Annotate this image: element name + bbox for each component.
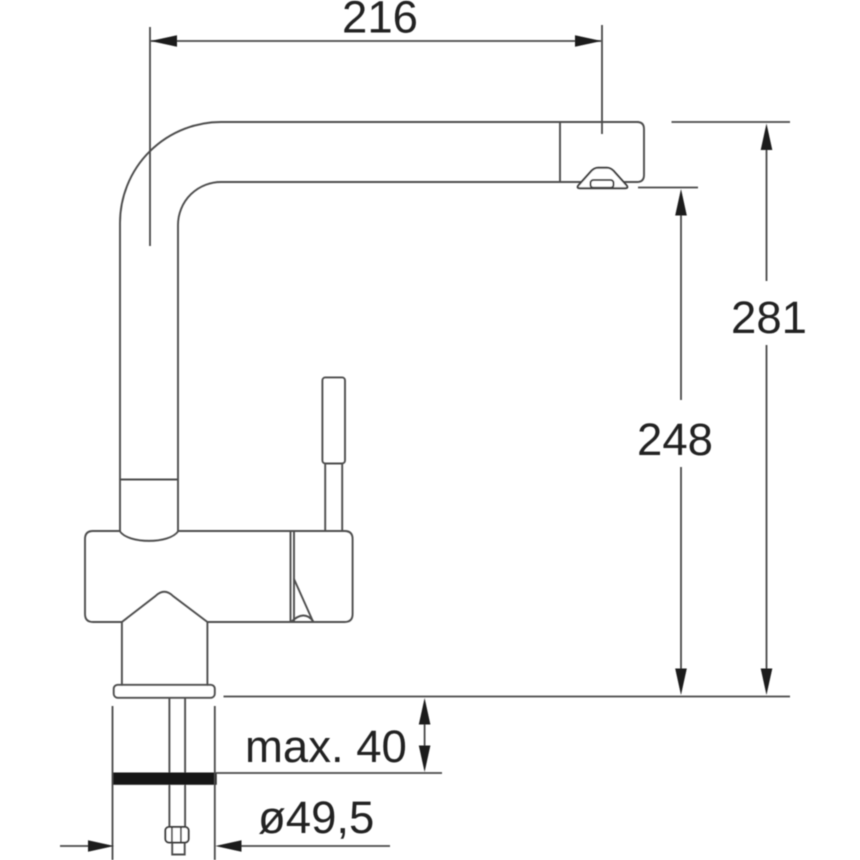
svg-text:248: 248: [637, 414, 713, 465]
svg-text:216: 216: [342, 0, 418, 43]
svg-text:ø49,5: ø49,5: [258, 792, 374, 843]
svg-text:max. 40: max. 40: [245, 721, 407, 772]
svg-text:281: 281: [731, 292, 807, 343]
